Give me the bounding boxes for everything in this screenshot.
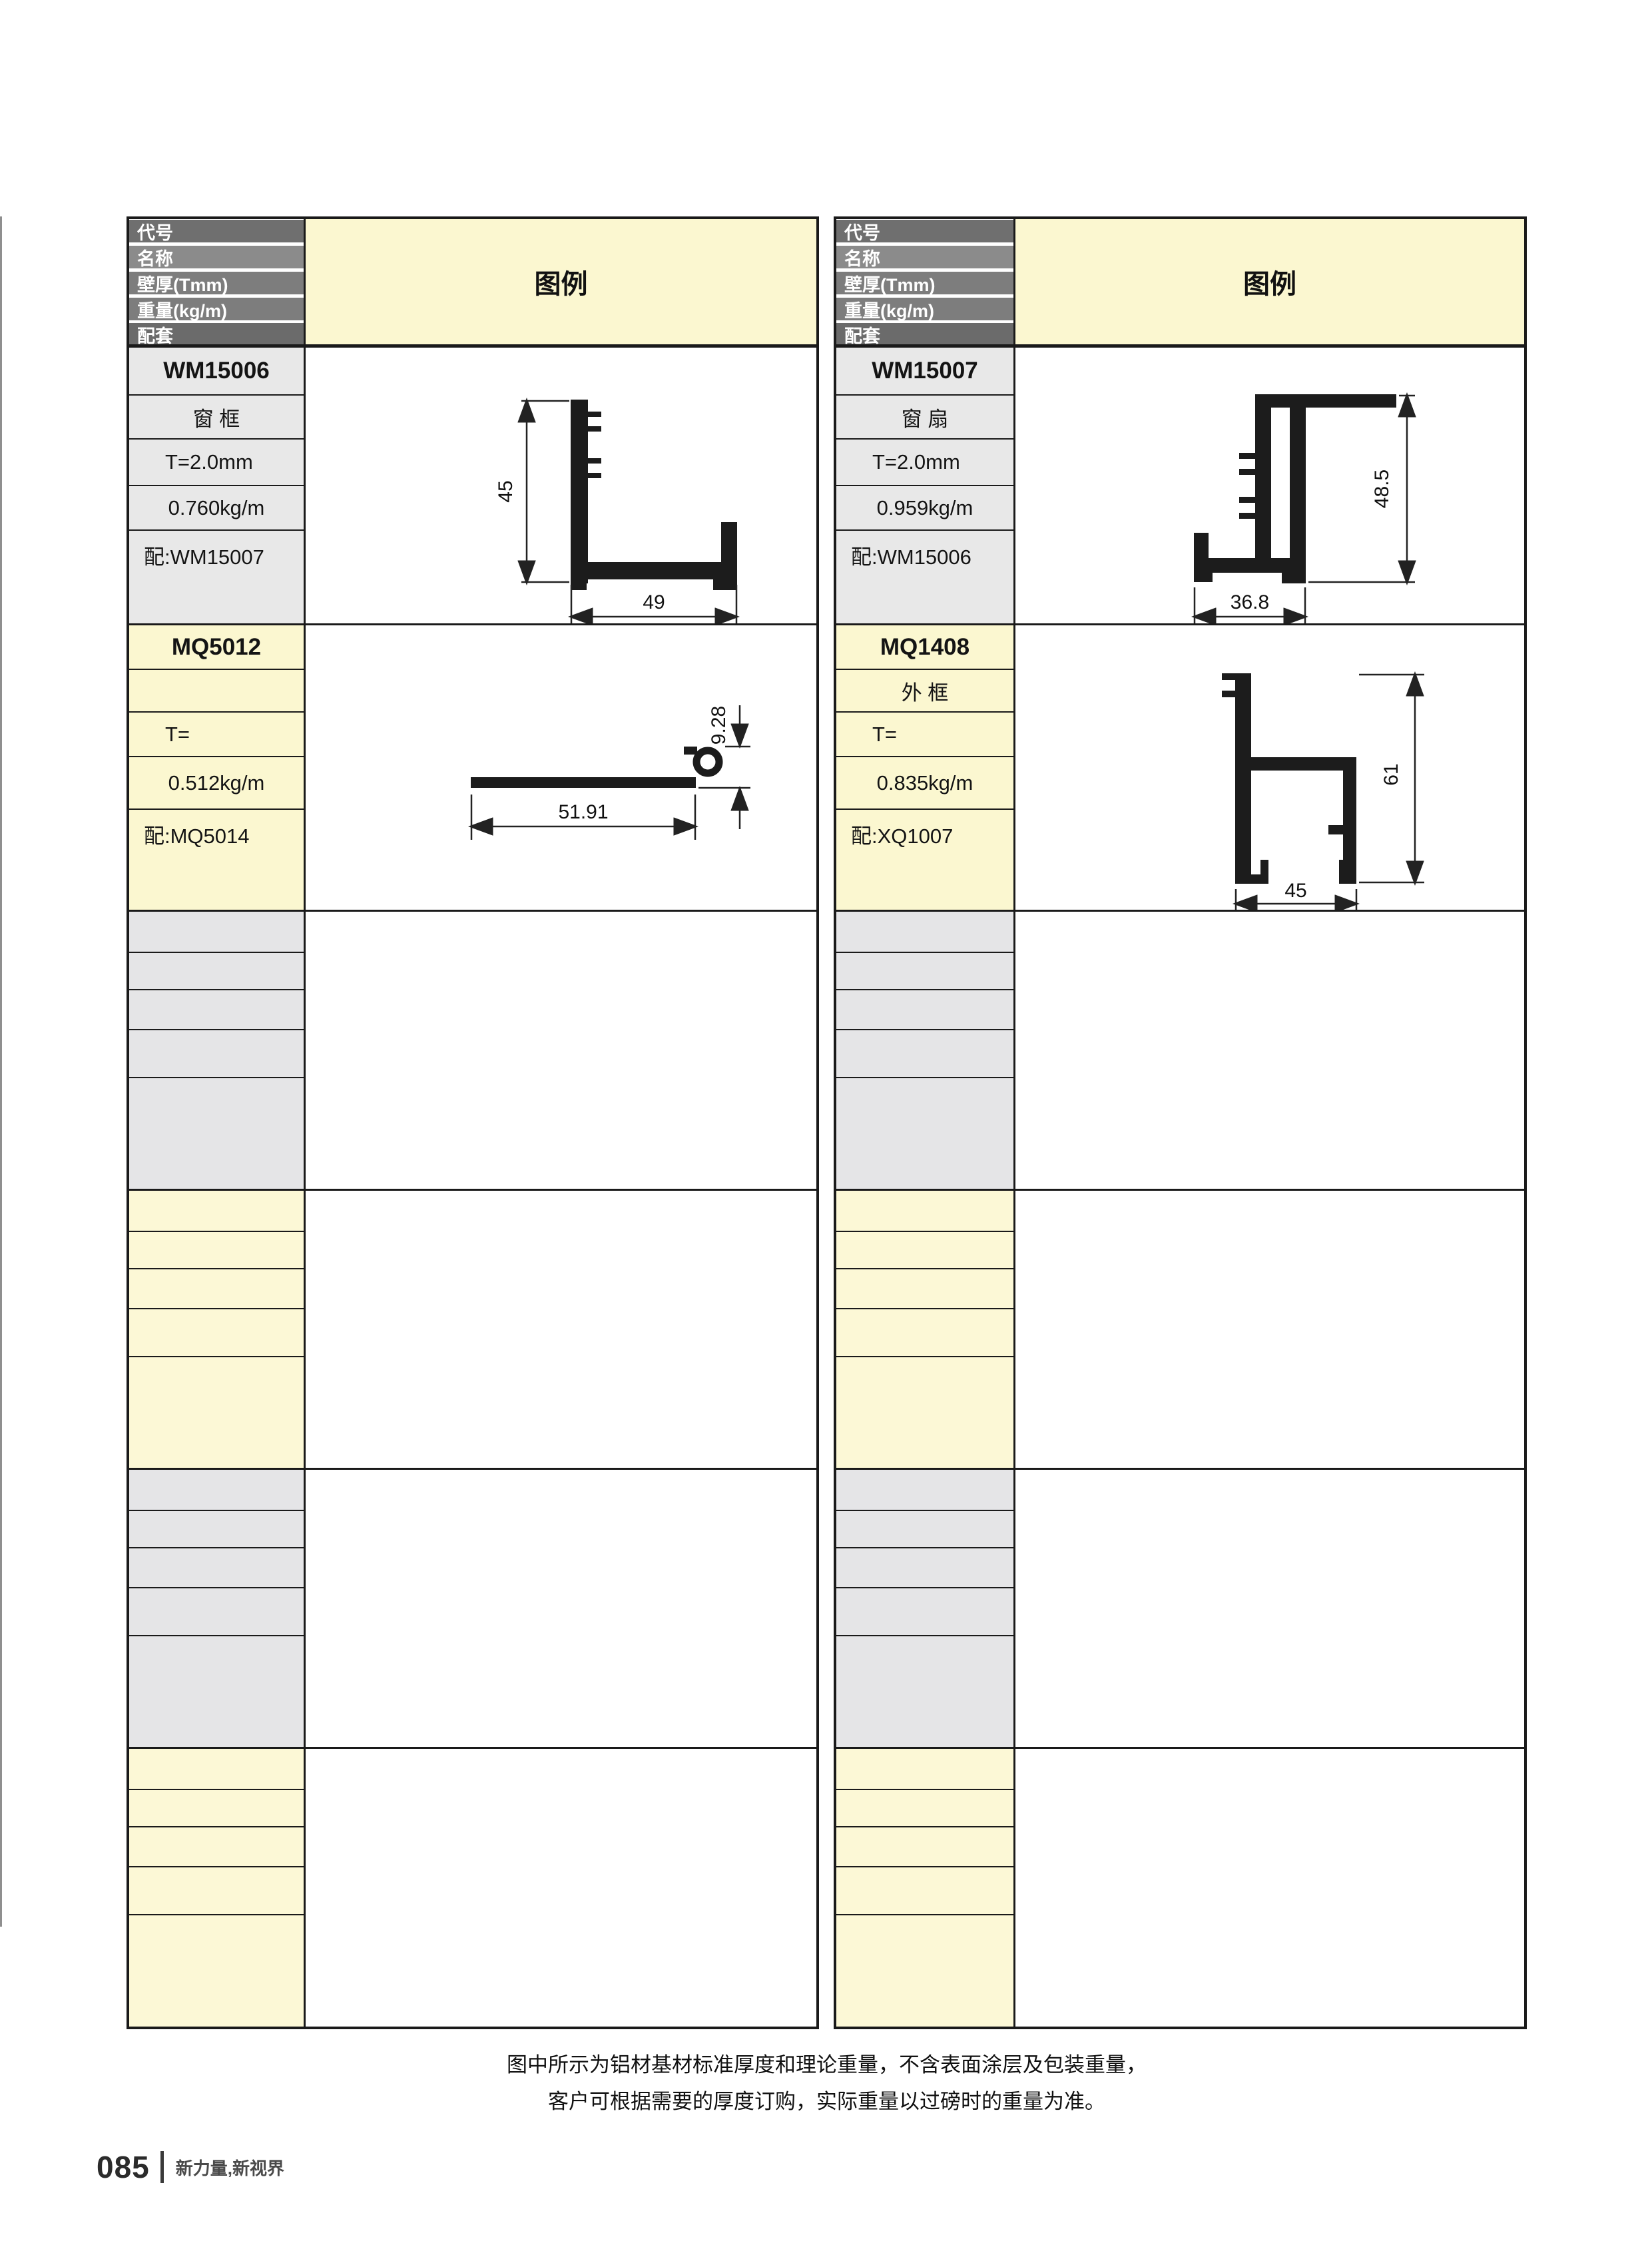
header-label: 代号 [137, 218, 173, 244]
diagram-area [306, 1470, 816, 1747]
diagram-area: 45 49 [306, 348, 816, 623]
cell-thickness: T=2.0mm [129, 440, 304, 486]
diagram-area [1015, 1470, 1524, 1747]
cell-weight: 0.959kg/m [836, 486, 1013, 531]
header-row-code: 代号 [836, 220, 1013, 242]
cell-match: 配:WM15007 [129, 531, 304, 623]
cell-name: 外 框 [836, 670, 1013, 713]
empty-cell [836, 1511, 1013, 1548]
header-row-thickness: 壁厚(Tmm) [129, 272, 304, 294]
empty-cell [129, 1790, 304, 1827]
empty-cell [836, 1269, 1013, 1309]
entry-empty [836, 912, 1524, 1189]
note-line-2: 客户可根据需要的厚度订购，实际重量以过磅时的重量为准。 [127, 2084, 1527, 2114]
header-label: 代号 [844, 218, 880, 244]
header-row-match: 配套 [836, 323, 1013, 346]
dimension-vertical: 48.5 [1308, 396, 1415, 582]
empty-cell [836, 1790, 1013, 1827]
page-edge-crop-line [0, 216, 2, 1927]
dim-label-horizontal: 36.8 [1231, 591, 1269, 613]
empty-cell [129, 1867, 304, 1915]
dimension-vertical: 61 [1359, 675, 1424, 882]
profile-shape [571, 400, 737, 590]
diagram-area: 61 45 [1015, 625, 1524, 910]
empty-cell [836, 1827, 1013, 1867]
diagram-area [306, 912, 816, 1189]
header-label: 重量(kg/m) [844, 296, 934, 322]
header-row-name: 名称 [129, 246, 304, 268]
cell-code: WM15007 [836, 348, 1013, 396]
cell-code: MQ5012 [129, 625, 304, 670]
cell-name [129, 670, 304, 713]
diagram-area [306, 1191, 816, 1468]
dimension-horizontal: 36.8 [1195, 587, 1305, 623]
empty-cell [836, 1749, 1013, 1790]
footer-divider [160, 2151, 164, 2183]
entry-wm15006: WM15006 窗 框 T=2.0mm 0.760kg/m 配:WM15007 [129, 348, 816, 623]
empty-cell [836, 1636, 1013, 1747]
empty-cell [129, 1548, 304, 1588]
diagram-area [1015, 912, 1524, 1189]
entry-empty [836, 1749, 1524, 2027]
cell-weight: 0.512kg/m [129, 757, 304, 810]
empty-cell [129, 1309, 304, 1357]
header-row-weight: 重量(kg/m) [129, 298, 304, 320]
header-row-thickness: 壁厚(Tmm) [836, 272, 1013, 294]
cell-match: 配:WM15006 [836, 531, 1013, 623]
entry-empty [836, 1191, 1524, 1468]
empty-cell [129, 1636, 304, 1747]
cell-thickness: T=2.0mm [836, 440, 1013, 486]
cell-code: WM15006 [129, 348, 304, 396]
cell-name: 窗 扇 [836, 396, 1013, 440]
profile-shape [471, 747, 719, 788]
profile-shape [1194, 394, 1396, 583]
legend-header-cell: 图例 [306, 219, 816, 344]
cell-code: MQ1408 [836, 625, 1013, 670]
empty-cell [129, 1470, 304, 1511]
profile-shape [1222, 673, 1356, 884]
empty-cell [129, 1078, 304, 1189]
header-label: 壁厚(Tmm) [137, 270, 228, 296]
cell-weight: 0.760kg/m [129, 486, 304, 531]
diagram-area: 48.5 36.8 [1015, 348, 1524, 623]
header-label: 名称 [137, 244, 173, 270]
legend-header-cell: 图例 [1015, 219, 1524, 344]
cell-match: 配:MQ5014 [129, 810, 304, 910]
legend-label: 图例 [535, 262, 588, 301]
empty-cell [129, 912, 304, 953]
empty-cell [836, 1309, 1013, 1357]
dimension-vertical: 45 [495, 401, 569, 582]
profile-diagram-wm15006: 45 49 [306, 348, 816, 623]
empty-cell [836, 1867, 1013, 1915]
diagram-area [1015, 1191, 1524, 1468]
empty-cell [129, 1915, 304, 2027]
page-footer: 085 新力量,新视界 [97, 2148, 284, 2186]
note-line-1: 图中所示为铝材基材标准厚度和理论重量，不含表面涂层及包装重量， [127, 2048, 1527, 2078]
dim-label-horizontal: 45 [1284, 880, 1306, 902]
empty-cell [836, 1588, 1013, 1636]
empty-cell [129, 1030, 304, 1078]
cell-name: 窗 框 [129, 396, 304, 440]
empty-cell [129, 990, 304, 1030]
empty-cell [836, 1915, 1013, 2027]
profile-diagram-mq1408: 61 45 [1015, 625, 1524, 910]
diagram-area [1015, 1749, 1524, 2027]
entry-empty [836, 1470, 1524, 1747]
profile-diagram-mq5012: 9.28 51.91 [306, 625, 816, 910]
catalog-page: 代号 名称 壁厚(Tmm) 重量(kg/m) 配套 图例 WM15006 窗 框… [0, 0, 1652, 2241]
header-row-name: 名称 [836, 246, 1013, 268]
empty-cell [836, 1078, 1013, 1189]
empty-cell [836, 1548, 1013, 1588]
cell-thickness: T= [836, 713, 1013, 757]
dim-label-horizontal: 49 [643, 591, 665, 613]
entry-empty [129, 1749, 816, 2027]
profile-diagram-wm15007: 48.5 36.8 [1015, 348, 1524, 623]
spec-table-right: 代号 名称 壁厚(Tmm) 重量(kg/m) 配套 图例 WM15007 窗 扇… [834, 216, 1527, 2029]
empty-cell [836, 1030, 1013, 1078]
empty-cell [129, 1232, 304, 1269]
header-label: 壁厚(Tmm) [844, 270, 936, 296]
entry-empty [129, 912, 816, 1189]
header-label: 配套 [844, 322, 880, 348]
empty-cell [129, 1269, 304, 1309]
empty-cell [129, 1191, 304, 1232]
brand-tagline: 新力量,新视界 [176, 2155, 284, 2180]
legend-label: 图例 [1243, 262, 1296, 301]
dim-label-horizontal: 51.91 [558, 801, 608, 823]
header-label: 名称 [844, 244, 880, 270]
empty-cell [836, 912, 1013, 953]
dimension-horizontal: 51.91 [471, 795, 695, 840]
dimension-horizontal: 45 [1236, 880, 1356, 910]
diagram-area [306, 1749, 816, 2027]
cell-thickness: T= [129, 713, 304, 757]
empty-cell [836, 1232, 1013, 1269]
header-row-match: 配套 [129, 323, 304, 346]
dimension-vertical: 9.28 [698, 705, 750, 829]
dim-label-vertical: 48.5 [1371, 470, 1393, 508]
header-label: 重量(kg/m) [137, 296, 227, 322]
empty-cell [836, 953, 1013, 990]
entry-mq5012: MQ5012 T= 0.512kg/m 配:MQ5014 [129, 625, 816, 910]
entry-wm15007: WM15007 窗 扇 T=2.0mm 0.959kg/m 配:WM15006 [836, 348, 1524, 623]
entry-empty [129, 1191, 816, 1468]
dimension-horizontal: 49 [571, 585, 736, 623]
empty-cell [836, 1191, 1013, 1232]
empty-cell [129, 1827, 304, 1867]
header-label: 配套 [137, 322, 173, 348]
empty-cell [836, 1357, 1013, 1468]
header-row-weight: 重量(kg/m) [836, 298, 1013, 320]
empty-cell [129, 1749, 304, 1790]
entry-empty [129, 1470, 816, 1747]
empty-cell [129, 953, 304, 990]
diagram-area: 9.28 51.91 [306, 625, 816, 910]
entry-mq1408: MQ1408 外 框 T= 0.835kg/m 配:XQ1007 [836, 625, 1524, 910]
dim-label-vertical: 61 [1380, 763, 1402, 785]
empty-cell [836, 1470, 1013, 1511]
dim-label-vertical: 45 [495, 480, 517, 502]
cell-match: 配:XQ1007 [836, 810, 1013, 910]
header-row-code: 代号 [129, 220, 304, 242]
page-number: 085 [97, 2149, 150, 2185]
empty-cell [129, 1357, 304, 1468]
spec-table-left: 代号 名称 壁厚(Tmm) 重量(kg/m) 配套 图例 WM15006 窗 框… [127, 216, 819, 2029]
empty-cell [836, 990, 1013, 1030]
empty-cell [129, 1588, 304, 1636]
dim-label-vertical: 9.28 [708, 706, 730, 745]
cell-weight: 0.835kg/m [836, 757, 1013, 810]
empty-cell [129, 1511, 304, 1548]
